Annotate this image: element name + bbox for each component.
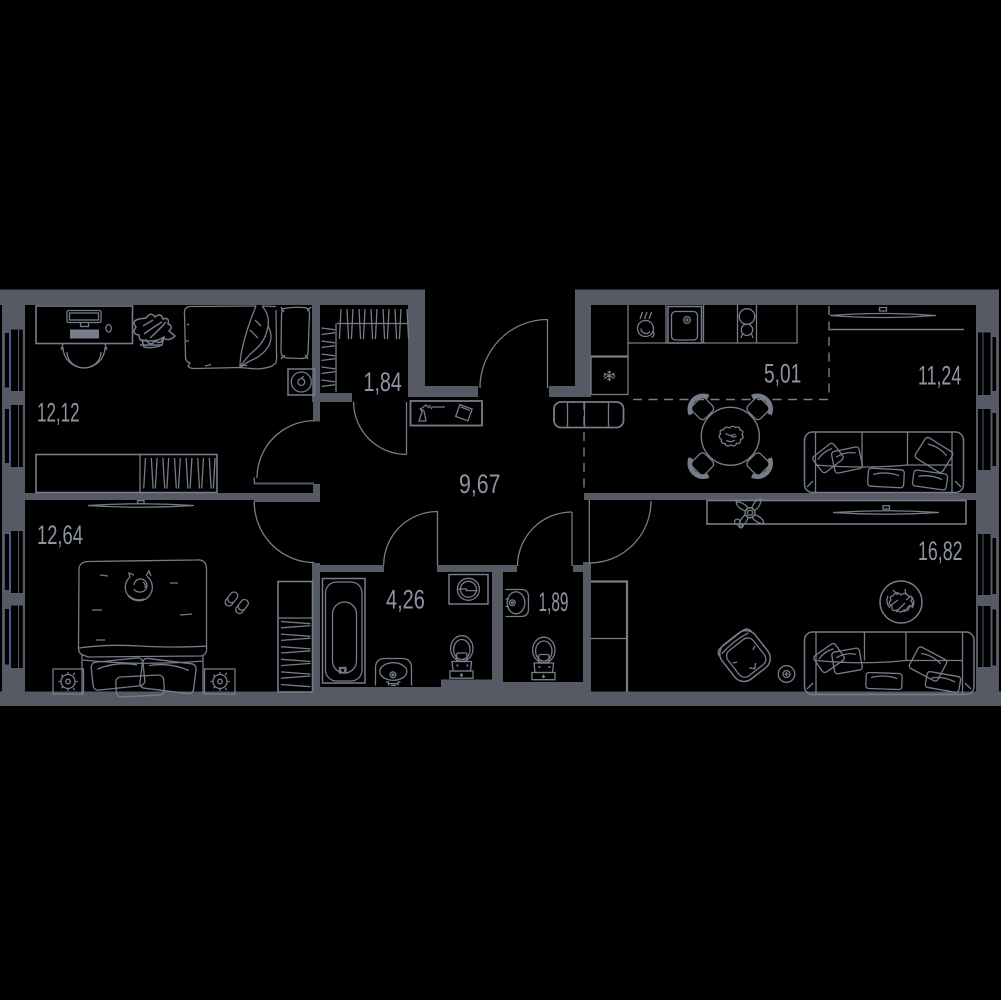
svg-text:16,82: 16,82 xyxy=(918,535,963,566)
svg-text:11,24: 11,24 xyxy=(918,360,961,391)
svg-text:1,84: 1,84 xyxy=(364,368,402,398)
svg-text:12,12: 12,12 xyxy=(37,398,80,428)
svg-text:9,67: 9,67 xyxy=(459,470,501,500)
svg-text:12,64: 12,64 xyxy=(37,519,83,549)
svg-text:5,01: 5,01 xyxy=(764,358,801,388)
svg-text:1,89: 1,89 xyxy=(539,586,569,617)
svg-text:4,26: 4,26 xyxy=(386,585,425,616)
